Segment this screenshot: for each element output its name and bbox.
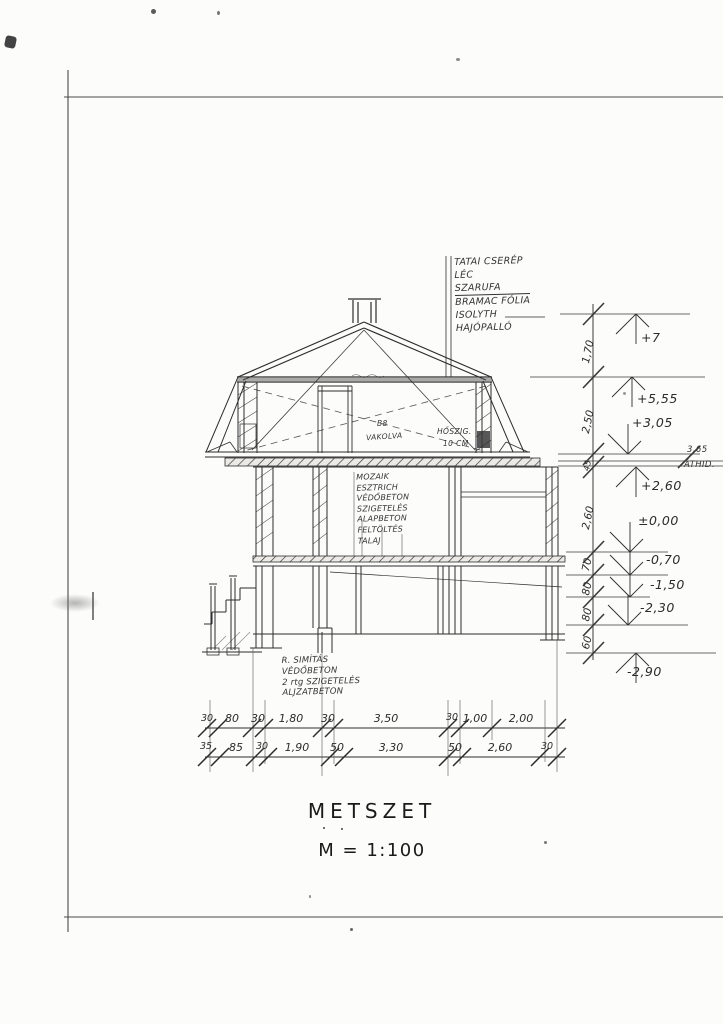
ground-slab-lines (253, 556, 565, 566)
level-label: +5,55 (637, 391, 678, 406)
level-label: -1,50 (650, 577, 685, 592)
dim-upper: 1,80 (279, 712, 304, 725)
scan-speck (544, 841, 547, 844)
dim-lower: 35 (200, 741, 212, 752)
level-label: +3,05 (632, 415, 673, 430)
edge-note-label: ÁTHID. (684, 460, 715, 470)
attic-ref-label: B8 (377, 419, 388, 428)
foundation-layer-item: ALJZATBETON (282, 686, 360, 699)
dim-upper: 1,00 (463, 712, 488, 725)
floor-layer-list: MOZAIK ESZTRICH VÉDŐBETON SZIGETELÉS ALA… (356, 471, 410, 547)
dim-lower: 50 (448, 741, 462, 754)
scan-speck (323, 827, 325, 829)
dim-upper: 30 (446, 712, 458, 723)
foundation-layer-list: R. SIMÍTÁS VÉDŐBETON 2 rtg SZIGETELÉS AL… (281, 654, 360, 699)
dim-upper: 30 (201, 713, 213, 724)
level-arrow-marks (608, 314, 649, 683)
scan-speck (341, 828, 343, 830)
dim-upper: 30 (251, 712, 265, 725)
level-label: -2,30 (640, 600, 675, 615)
roof-layer-item: HAJÓPALLÓ (456, 320, 531, 335)
attic-insulation-size: 10 CM (443, 439, 469, 448)
dim-lower: 85 (229, 741, 243, 754)
level-label: -0,70 (646, 552, 681, 567)
edge-note-value: 3,65 (687, 445, 708, 455)
dim-lower: 1,90 (285, 741, 310, 754)
dim-lower: 50 (330, 741, 344, 754)
dim-lower: 30 (541, 741, 553, 752)
drawing-scale: M = 1:100 (312, 840, 432, 861)
scan-speck (151, 9, 156, 14)
floor-layer-item: TALAJ (358, 535, 411, 547)
dim-lower: 3,30 (379, 741, 404, 754)
scan-speck (217, 11, 220, 15)
dim-upper: 30 (321, 712, 335, 725)
scanned-section-drawing: TATAI CSERÉP LÉC SZARUFA BRAMAC FÓLIA IS… (0, 0, 723, 1024)
scan-speck (623, 392, 626, 395)
level-lines (530, 303, 723, 664)
roof-layer-item: BRAMAC FÓLIA (455, 294, 530, 309)
scan-smudge-stroke (92, 592, 94, 620)
roof-layer-list: TATAI CSERÉP LÉC SZARUFA BRAMAC FÓLIA IS… (454, 254, 531, 335)
scan-speck (456, 58, 460, 61)
eaves-slab-lines (205, 442, 558, 467)
attic-insulation-label: HŐSZIG. (437, 427, 472, 436)
dim-upper: 3,50 (374, 712, 399, 725)
dimension-chain-lines (198, 640, 566, 776)
floor-layer-item: FELTÖLTÉS (357, 524, 410, 536)
stair-lines (202, 576, 262, 655)
scan-speck (309, 895, 311, 898)
foundation-lines (250, 566, 565, 653)
dim-lower: 30 (256, 741, 268, 752)
dim-lower: 2,60 (488, 741, 513, 754)
scan-speck (350, 928, 353, 931)
level-label: ±0,00 (638, 513, 679, 528)
level-label: -2,90 (627, 664, 662, 679)
dim-upper: 2,00 (509, 712, 534, 725)
level-label: +2,60 (641, 478, 682, 493)
dim-upper: 80 (225, 712, 239, 725)
level-label: +7 (641, 330, 660, 345)
drawing-title: METSZET (306, 799, 438, 823)
roof-layer-item: TATAI CSERÉP (454, 254, 529, 269)
